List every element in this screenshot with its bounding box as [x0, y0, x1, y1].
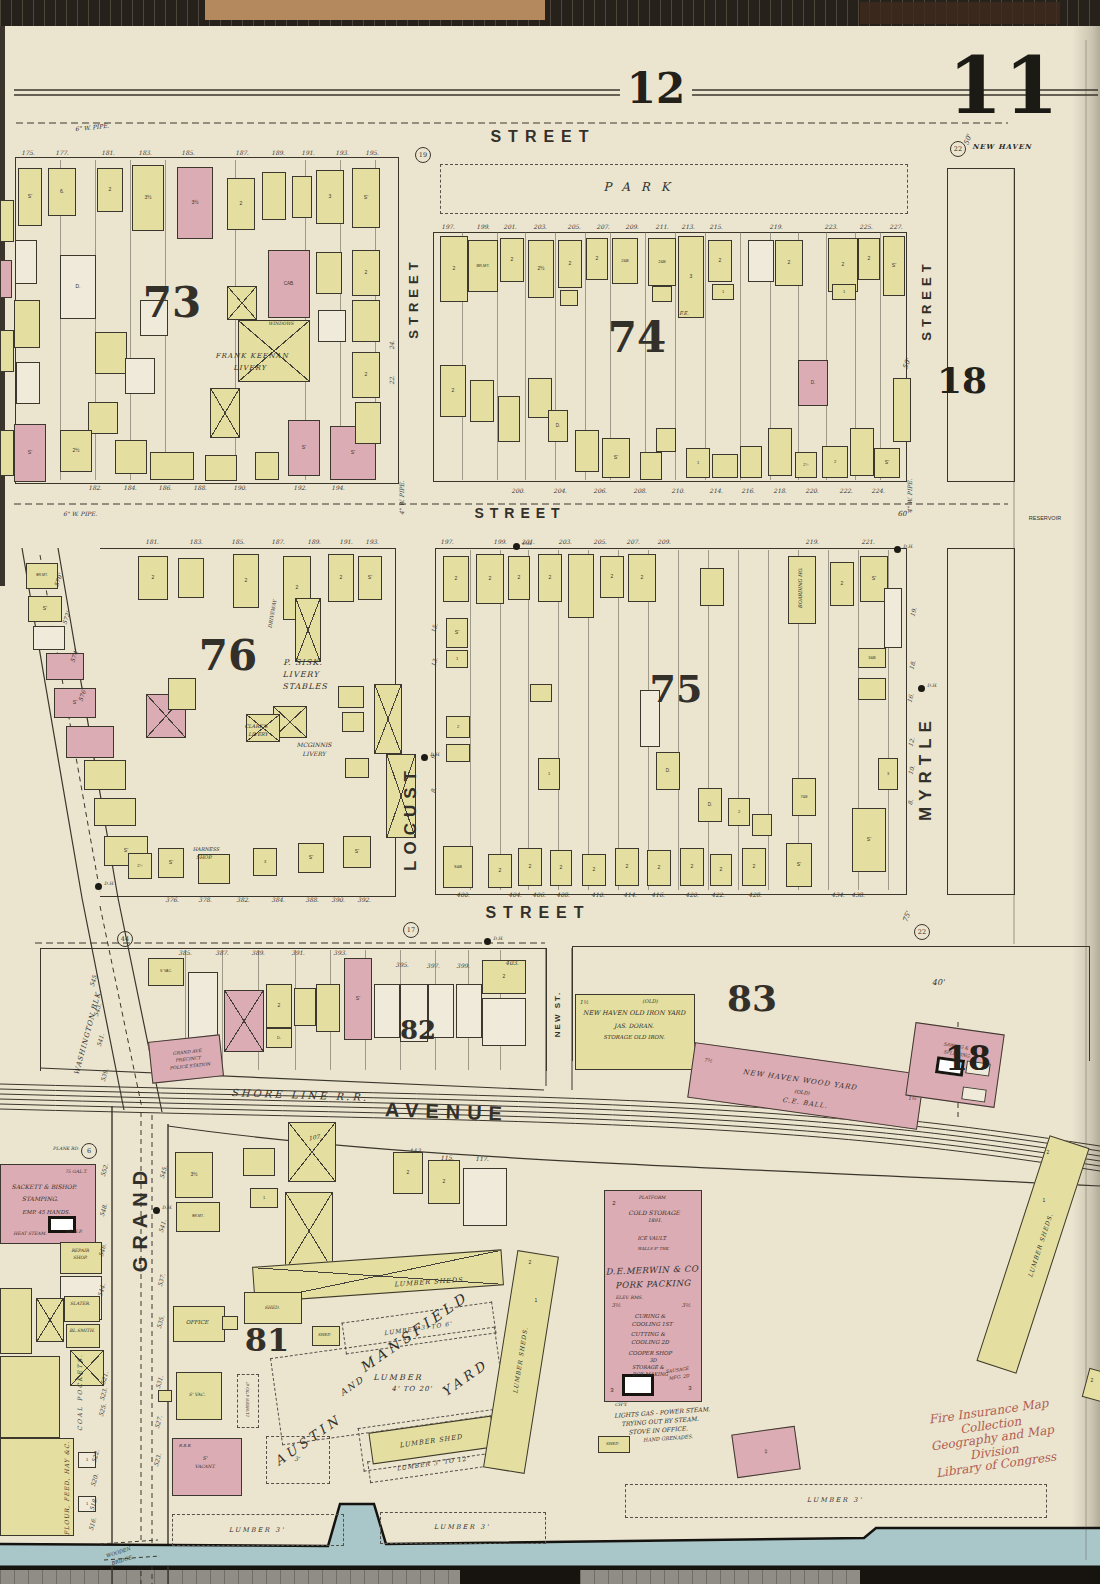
building	[288, 1122, 336, 1182]
building: 3½	[132, 165, 164, 231]
building	[210, 388, 240, 438]
building-label: 1	[86, 1458, 88, 1462]
adjacent-sheet-number-right-upper: 18	[937, 359, 987, 401]
building	[752, 814, 772, 836]
map-label: STREET	[485, 904, 590, 922]
building	[115, 440, 147, 474]
house-number: 191.	[301, 149, 314, 156]
building	[14, 300, 40, 348]
map-label: 83	[727, 977, 777, 1019]
building-label: 2	[764, 1449, 767, 1455]
building-label: 2	[596, 256, 599, 261]
building	[456, 984, 482, 1038]
building-label: 2	[753, 864, 756, 869]
building	[700, 568, 724, 606]
building: D.	[698, 788, 722, 822]
building: S'	[298, 843, 324, 873]
building-label: 2	[560, 865, 563, 870]
lot-line	[740, 232, 741, 480]
building-label: S'	[309, 855, 313, 860]
map-label: BL.SMITH.	[69, 1328, 95, 1333]
adjacent-sheet-number-top: 12	[627, 64, 685, 113]
house-number: 220.	[805, 487, 818, 494]
building-label: 2	[549, 575, 552, 580]
hydrant-marker	[894, 546, 901, 553]
lot-line	[130, 160, 131, 480]
map-label: PLANK RD.	[53, 1146, 79, 1151]
map-label: STREET	[919, 259, 934, 340]
building	[482, 998, 526, 1046]
building	[352, 300, 380, 342]
house-number: 209.	[657, 538, 670, 545]
building-label: S'	[28, 450, 32, 455]
house-number: 399.	[456, 962, 469, 969]
map-label: 4' TO 20'	[391, 1385, 432, 1393]
building	[884, 588, 902, 648]
house-number: 205.	[593, 538, 606, 545]
building-label: S'	[302, 445, 306, 450]
city-label: NEW HAVEN	[972, 142, 1032, 151]
building: 2	[508, 556, 530, 600]
building	[262, 172, 286, 220]
building: 1	[446, 650, 468, 668]
house-number: 185.	[181, 149, 194, 156]
building-label: 2	[719, 258, 722, 263]
building-label: BR.MT.	[36, 574, 47, 578]
building-label: 2	[569, 261, 572, 266]
house-number: 190.	[233, 484, 246, 491]
map-label: COOPER SHOP	[628, 1350, 672, 1356]
sheet-ref-circle: 19	[415, 147, 431, 163]
building-label: S'	[169, 860, 173, 865]
building-label: 3&B	[868, 656, 876, 660]
building-label: S'	[892, 263, 896, 268]
house-number: 197.	[440, 538, 453, 545]
building	[66, 726, 114, 758]
building: S'	[352, 168, 380, 228]
building-label: S'	[867, 837, 871, 842]
building-label: 2&B	[658, 260, 666, 264]
house-number: 392.	[357, 896, 370, 903]
map-label: COLD STORAGE	[628, 1209, 679, 1216]
building: D.	[60, 255, 96, 319]
building	[568, 554, 594, 618]
house-number: 414.	[623, 891, 636, 898]
building-label: 3½	[192, 200, 199, 205]
building-label: 2	[109, 187, 112, 192]
map-label: STREET	[406, 257, 421, 338]
building-label: 2	[738, 810, 740, 814]
map-label: NEW ST.	[553, 991, 562, 1037]
building: S'	[786, 843, 812, 887]
house-number: 408.	[556, 891, 569, 898]
building-label: 6.	[60, 189, 64, 194]
map-label: 81	[245, 1321, 290, 1359]
house-number: 189.	[307, 538, 320, 545]
building: S'	[343, 836, 371, 868]
house-number: 385.	[178, 949, 191, 956]
house-number: 438.	[851, 891, 864, 898]
house-number: 187.	[235, 149, 248, 156]
map-label: 2	[612, 1200, 615, 1206]
building-label: S'	[356, 996, 360, 1001]
sheet-ref-circle: 44	[117, 931, 133, 947]
map-label: SLATER.	[70, 1301, 90, 1306]
house-number: 185.	[231, 538, 244, 545]
building	[33, 626, 65, 650]
lot-line	[222, 950, 223, 1070]
house-number: 182.	[88, 484, 101, 491]
building	[345, 758, 369, 778]
house-number: 187.	[271, 538, 284, 545]
building-label: 2	[518, 575, 521, 580]
building: 2	[742, 848, 766, 886]
building: 3&B	[858, 648, 886, 668]
map-label: RESERVOIR	[1029, 515, 1061, 521]
map-label: 74	[608, 313, 666, 362]
map-label: 1½	[908, 1095, 916, 1101]
hydrant-label: D.H.	[104, 881, 114, 886]
building	[342, 712, 364, 732]
building	[355, 402, 381, 444]
map-label: 2	[1091, 1377, 1094, 1383]
house-number: 194.	[331, 484, 344, 491]
building	[88, 402, 118, 434]
map-label: 1½	[580, 999, 589, 1005]
block-outline	[947, 168, 1015, 482]
building-label: 2½	[73, 448, 80, 453]
house-number: 184.	[123, 484, 136, 491]
house-number: 420.	[685, 891, 698, 898]
building-label: 2	[407, 1170, 410, 1175]
map-label: CLARK'S	[244, 723, 267, 729]
hydrant-label: D.H.	[493, 936, 503, 941]
map-label: GRAND	[129, 1164, 152, 1272]
building-label: D.	[76, 284, 81, 289]
building: 2	[500, 238, 524, 282]
building: 2	[440, 236, 468, 302]
building	[318, 310, 346, 342]
map-label: 1891.	[648, 1217, 662, 1223]
map-label: 6" W. PIPE.	[63, 510, 97, 517]
map-label: 1	[535, 1297, 538, 1303]
building-label: 2	[489, 576, 492, 581]
map-label: BOX MAKING	[632, 1371, 668, 1377]
building-label: 2	[453, 266, 456, 271]
building: S'	[14, 424, 46, 482]
building-label: 2	[658, 865, 661, 870]
building	[46, 653, 84, 680]
building: 2	[822, 446, 848, 478]
building	[0, 260, 12, 298]
map-label: JAS. DORAN.	[614, 1022, 654, 1029]
sheet-number: 11	[948, 40, 1061, 131]
house-number: 416.	[651, 891, 664, 898]
building	[530, 684, 552, 702]
building	[768, 428, 792, 476]
building: 1	[686, 448, 710, 478]
house-number: 218.	[773, 487, 786, 494]
building-label: 3½	[191, 1172, 198, 1177]
building	[0, 330, 14, 372]
building	[656, 428, 676, 452]
building: 2	[443, 556, 469, 602]
map-label: P. SISK.	[283, 658, 323, 667]
house-number: 214.	[709, 487, 722, 494]
lot-line	[880, 232, 881, 480]
hydrant-label: D.H.	[903, 544, 913, 549]
house-number: 389.	[251, 949, 264, 956]
house-number: 406.	[532, 891, 545, 898]
building: 2	[97, 168, 123, 212]
building-label: 2	[511, 257, 514, 262]
building: 2	[586, 238, 608, 280]
building: S'	[883, 236, 905, 296]
building-label: 1	[263, 1196, 265, 1200]
building: 2	[615, 848, 639, 886]
building-label: 1	[722, 290, 724, 294]
map-label: 45 H.P.	[66, 1229, 82, 1234]
map-label: LIVERY	[302, 750, 325, 757]
building-label: 2	[452, 388, 455, 393]
house-number: 387.	[215, 949, 228, 956]
map-label: AVENUE	[385, 1098, 510, 1125]
house-number: 208.	[633, 487, 646, 494]
hydrant-label: D.H.	[927, 683, 937, 688]
building-label: 2	[834, 460, 836, 464]
map-label: FRANK KEENAN	[215, 352, 289, 360]
map-label: STREET	[474, 505, 565, 521]
building: 2	[830, 562, 854, 606]
building-label: BR.MT.	[476, 264, 489, 268]
map-label: STREET	[490, 128, 595, 146]
lot-line	[768, 550, 769, 890]
house-number: 219.	[769, 223, 782, 230]
building	[893, 378, 911, 442]
building: 3	[878, 758, 898, 790]
map-label: STAMPING.	[22, 1195, 58, 1202]
building-label: S'	[455, 630, 459, 635]
building-label: 2	[626, 864, 629, 869]
house-number: 113.	[409, 1147, 422, 1154]
building	[224, 990, 264, 1052]
building-label: 1	[843, 290, 845, 294]
house-number: 200.	[511, 487, 524, 494]
map-label: 76	[199, 631, 257, 680]
house-number: 211.	[655, 223, 668, 230]
building: 2	[647, 850, 671, 886]
sheet-ref-circle: 22	[950, 141, 966, 157]
lot-line	[738, 550, 739, 890]
building-label: 2½	[803, 463, 809, 467]
map-label: MYRTLE	[916, 715, 936, 821]
map-label: COAL POCKETS.	[76, 1353, 83, 1431]
building-label: 2	[443, 1179, 446, 1184]
house-number: 378.	[198, 896, 211, 903]
house-number: 400.	[456, 891, 469, 898]
building: 2	[476, 554, 504, 604]
map-label: LOCUST	[401, 765, 421, 871]
building-label: S'	[614, 455, 618, 460]
hydrant-label: D.H.	[162, 1205, 172, 1210]
building	[36, 1298, 64, 1342]
lot-line	[828, 550, 829, 890]
house-number: 189.	[271, 149, 284, 156]
house-number: 203.	[533, 223, 546, 230]
map-label: LUMBER 3'	[807, 1496, 864, 1504]
house-number: 222.	[839, 487, 852, 494]
hydrant-marker	[153, 1207, 160, 1214]
map-label: 3½	[612, 1302, 621, 1308]
building: 2½	[795, 452, 817, 478]
building-label: S' VAC.	[160, 970, 172, 974]
map-label: SHED	[318, 1332, 330, 1337]
lot-line	[705, 232, 706, 480]
map-canvas: S'6.23½3½23S'CAB.D.S'2½S'S'222BR.MT.22½2…	[0, 0, 1100, 1584]
map-label: 75 GAL.T.	[65, 1169, 87, 1174]
building-label: 2½	[538, 266, 545, 271]
map-label: SHED	[606, 1441, 618, 1446]
hydrant-marker	[513, 543, 520, 550]
building	[125, 358, 155, 394]
building	[338, 686, 364, 708]
map-label: 3	[610, 1387, 613, 1393]
building: D.	[266, 1028, 292, 1048]
map-label: 4" W. PIPE.	[906, 479, 913, 513]
house-number: 188.	[193, 484, 206, 491]
building: D.	[798, 360, 828, 406]
building: 3	[316, 170, 344, 224]
map-label: LUMBER 3'	[229, 1526, 286, 1534]
building	[255, 452, 279, 480]
building-label: BR.MT.	[192, 1215, 203, 1219]
map-label: (OLD)	[642, 998, 657, 1004]
building	[0, 200, 14, 242]
building-label: 2&B	[621, 259, 629, 263]
building: 2½	[528, 240, 554, 298]
building	[0, 1288, 32, 1354]
building-label: S'	[351, 450, 355, 455]
house-number: 403.	[505, 959, 518, 966]
building: 2	[138, 556, 168, 600]
house-number: 183.	[138, 149, 151, 156]
building	[205, 455, 237, 481]
building: S'	[602, 438, 630, 478]
building: 2	[710, 854, 732, 886]
building-label: 2	[278, 1003, 281, 1008]
map-label: SHOP.	[73, 1255, 87, 1260]
house-number: 384.	[271, 896, 284, 903]
map-label: F.E.	[679, 310, 689, 316]
building-label: S'	[43, 606, 47, 611]
building: 2	[538, 554, 562, 602]
map-label: 2	[1047, 1149, 1050, 1155]
building: 2	[518, 848, 542, 886]
building-label: 2	[296, 585, 299, 590]
house-number: 207.	[596, 223, 609, 230]
map-label: COOLING 1ST	[632, 1321, 673, 1327]
house-number: 206.	[593, 487, 606, 494]
map-label: MCGINNIS	[297, 741, 332, 748]
building: 7&8	[792, 778, 816, 816]
sheet-ref-circle: 22	[914, 924, 930, 940]
building-label: S'	[797, 862, 801, 867]
building: 3½	[175, 1152, 213, 1198]
building	[463, 1168, 507, 1226]
building: S' VAC.	[148, 958, 184, 986]
building: BR.MT.	[176, 1202, 220, 1232]
building: 2	[328, 554, 354, 602]
house-number: 397.	[426, 962, 439, 969]
building: 2	[428, 1160, 460, 1204]
house-number: 213.	[681, 223, 694, 230]
house-number: 22.	[388, 375, 395, 385]
house-number: 205.	[567, 223, 580, 230]
house-number: 199.	[476, 223, 489, 230]
house-number: 227.	[889, 223, 902, 230]
building	[470, 380, 494, 422]
map-label: LUMBER 3'	[434, 1523, 491, 1531]
map-label: CUTTING &	[631, 1331, 665, 1337]
building-label: 2	[152, 575, 155, 580]
building-label: 2½	[137, 864, 143, 868]
map-label: 75	[650, 666, 703, 711]
map-label: CURING &	[634, 1313, 665, 1319]
hydrant-marker	[484, 938, 491, 945]
lot-line	[618, 550, 619, 890]
building	[94, 798, 136, 826]
building-label: 2	[868, 256, 871, 261]
house-number: 199.	[493, 538, 506, 545]
building	[850, 428, 874, 476]
building: 2	[440, 365, 466, 417]
house-number: 207.	[626, 538, 639, 545]
building	[622, 1374, 654, 1396]
building-label: S&B	[454, 865, 462, 869]
building	[95, 332, 127, 374]
map-label: STABLES	[282, 682, 328, 691]
building: CAB.	[268, 250, 310, 318]
building	[316, 252, 342, 294]
map-label: LIVERY	[282, 670, 319, 679]
building-label: S'	[73, 700, 77, 705]
building-label: 2	[240, 201, 243, 206]
house-number: 404.	[508, 891, 521, 898]
house-number: 117.	[475, 1155, 488, 1162]
building-label: D.	[277, 1036, 281, 1040]
building-label: 3	[264, 860, 266, 864]
building: 2	[352, 352, 380, 398]
building-label: S'	[368, 575, 372, 580]
lot-line	[528, 550, 529, 890]
building: 2&B	[612, 238, 638, 284]
building: S'	[158, 848, 184, 878]
building: 2	[775, 240, 803, 286]
house-number: 223.	[824, 223, 837, 230]
building-label: 2	[457, 725, 459, 729]
building: BR.MT.	[468, 240, 498, 292]
house-number: 192.	[293, 484, 306, 491]
map-label: CH'Y.	[615, 1402, 627, 1407]
building: D.	[548, 410, 568, 442]
building-label: 3½	[145, 195, 152, 200]
building: 2	[680, 848, 704, 886]
building-label: 2	[593, 867, 596, 872]
house-number: 215.	[709, 223, 722, 230]
lot-line	[555, 232, 556, 480]
map-label: 4" W. PIPE.	[398, 481, 405, 515]
building	[178, 558, 204, 598]
